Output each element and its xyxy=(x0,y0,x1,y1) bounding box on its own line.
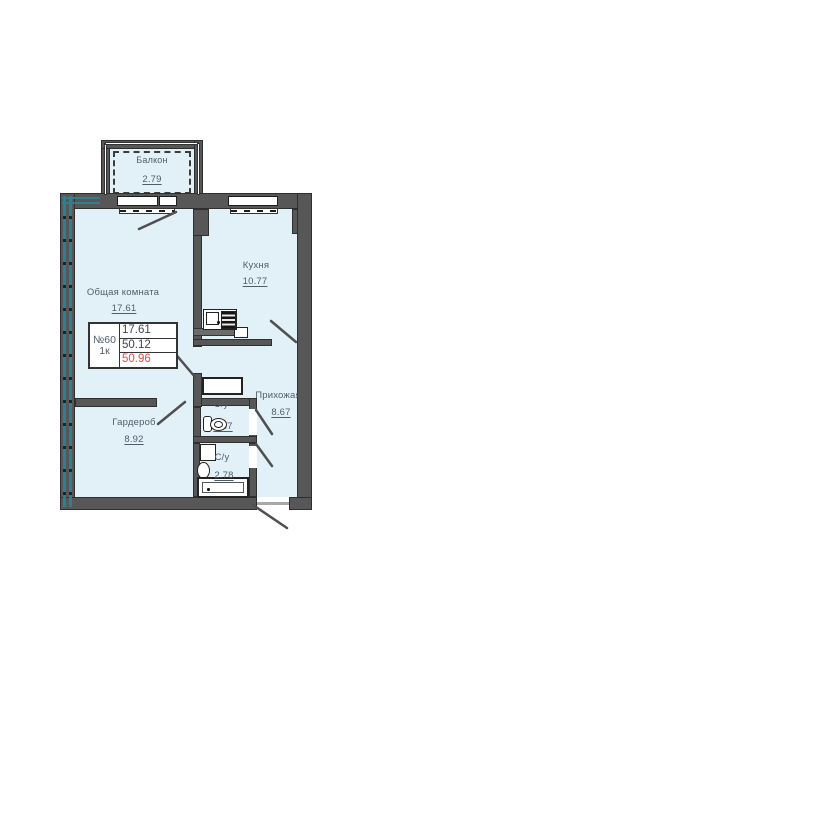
kitchen-label: Кухня xyxy=(243,260,269,271)
wc2-label: С/у xyxy=(215,452,230,463)
balcony-area: 2.79 xyxy=(142,174,161,185)
balcony-label: Балкон xyxy=(136,155,167,165)
wall-top-insulation-strip-2 xyxy=(62,202,100,204)
unit-total-area: 50.96 xyxy=(120,353,176,367)
kitchen-sink-faucet xyxy=(217,321,220,324)
wall-left-insulation-strip-2 xyxy=(69,196,72,507)
kitchen-counter-wall xyxy=(193,339,272,346)
vent-shaft-icon xyxy=(202,377,243,395)
unit-number: №60 xyxy=(93,335,116,346)
wall-living-kitchen-pillar xyxy=(193,209,209,236)
floor-plan-canvas: Балкон 2.79 xyxy=(0,0,828,828)
living-room-label: Общая комната xyxy=(87,287,159,298)
wc1-door-opening xyxy=(249,409,257,435)
wardrobe-label: Гардероб xyxy=(112,417,155,428)
wc1-label: С/у xyxy=(214,399,229,410)
balcony-window xyxy=(117,196,158,206)
unit-type: 1к xyxy=(99,346,109,357)
unit-living-area: 50.12 xyxy=(120,339,176,354)
unit-areas-cell: 17.61 50.12 50.96 xyxy=(120,324,176,367)
balcony-door-opening xyxy=(159,196,177,206)
unit-room-area: 17.61 xyxy=(120,324,176,339)
balcony-glazing-left xyxy=(104,143,107,195)
wall-wardrobe-living xyxy=(75,398,157,407)
kitchen-area: 10.77 xyxy=(243,276,268,287)
wall-top-insulation-strip-1 xyxy=(62,197,100,199)
unit-id-cell: №60 1к xyxy=(90,324,120,367)
wc2-door-opening xyxy=(249,446,257,468)
wall-right xyxy=(297,193,312,510)
wall-bottom-left-segment xyxy=(60,497,257,510)
wc1-wall-bottom xyxy=(193,436,257,443)
living-room-area: 17.61 xyxy=(112,303,137,314)
unit-info-box: №60 1к 17.61 50.12 50.96 xyxy=(88,322,178,369)
kitchen-window xyxy=(228,196,278,206)
wall-bottom-right-segment xyxy=(289,497,312,510)
entrance-threshold xyxy=(257,502,289,505)
wc2-area: 2.78 xyxy=(214,470,233,481)
balcony-glazing-right xyxy=(197,143,200,195)
stove-icon xyxy=(221,311,236,329)
wall-left-insulation-strip-1 xyxy=(63,196,66,507)
kitchen-radiator xyxy=(230,208,278,214)
wall-right-pilaster xyxy=(292,209,298,234)
wardrobe-area: 8.92 xyxy=(124,434,143,445)
hallway-label: Прихожая xyxy=(255,390,301,401)
balcony-glazing-top xyxy=(105,142,199,145)
door-swing-entrance xyxy=(253,505,287,528)
hallway-area: 8.67 xyxy=(271,407,290,418)
living-room-radiator xyxy=(119,208,175,214)
